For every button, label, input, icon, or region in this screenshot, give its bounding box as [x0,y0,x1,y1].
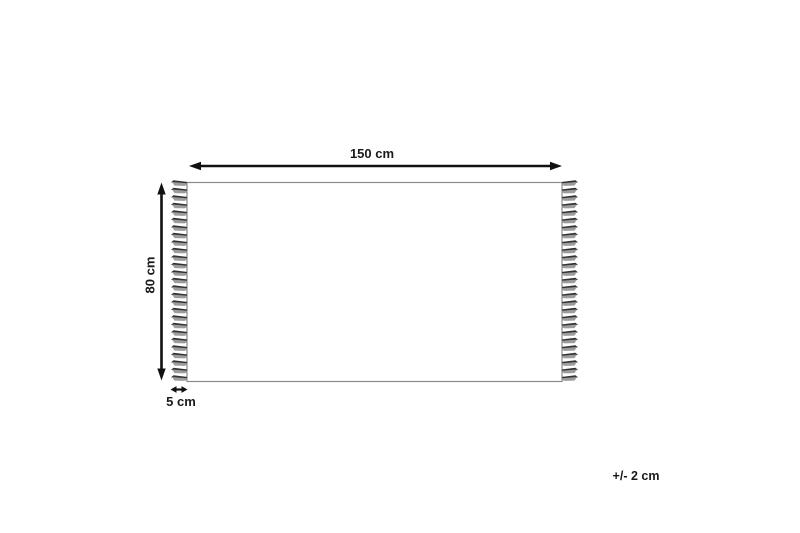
tassel [562,308,578,314]
tassel [171,278,187,284]
tassel [171,330,187,336]
tassel [171,255,187,261]
tassel [171,188,187,194]
tassel [562,233,578,239]
tassel [171,210,187,216]
tassel [562,225,578,231]
tassel [171,240,187,246]
tassel [562,180,578,186]
tassel [562,285,578,291]
tassel [171,308,187,314]
tassel [562,345,578,351]
tassel [562,255,578,261]
tassel [562,263,578,269]
tassel [562,278,578,284]
tassel [171,353,187,359]
tassel [562,188,578,194]
tassel [171,233,187,239]
rug-dimension-diagram: 150 cm 80 cm 5 cm +/- 2 cm [0,0,800,533]
tassel [562,218,578,224]
tassel [562,240,578,246]
tassel [171,248,187,254]
tassel [171,323,187,329]
tassel [562,338,578,344]
rug-diagram-drawing [0,0,800,533]
tassel [562,360,578,366]
height-dimension-arrow [157,183,165,381]
tassel [562,375,578,381]
tassel [562,330,578,336]
tassel [171,368,187,374]
tassel [562,293,578,299]
tassel [171,300,187,306]
width-dimension-arrow [189,162,562,170]
tassel [171,345,187,351]
left-fringe [171,180,187,381]
tassel [562,323,578,329]
tassel [171,195,187,201]
tassel [171,180,187,186]
tassel [562,270,578,276]
fringe-dimension-label: 5 cm [166,395,196,408]
tassel [562,203,578,209]
tassel [562,210,578,216]
tassel [562,195,578,201]
tassel [171,285,187,291]
tassel [562,300,578,306]
tassel [171,375,187,381]
tassel [562,248,578,254]
tassel [171,203,187,209]
tassel [171,225,187,231]
tassel [171,360,187,366]
tassel [171,315,187,321]
tassel [562,315,578,321]
rug-rectangle [187,183,562,382]
tassel [562,368,578,374]
tassel [171,293,187,299]
tassel [171,338,187,344]
tassel [171,270,187,276]
tassel [171,263,187,269]
tassel [171,218,187,224]
right-fringe [562,180,578,381]
tassel [562,353,578,359]
fringe-dimension-arrow [171,386,188,393]
width-dimension-label: 150 cm [350,147,394,160]
tolerance-label: +/- 2 cm [613,470,660,483]
height-dimension-label: 80 cm [144,257,157,294]
